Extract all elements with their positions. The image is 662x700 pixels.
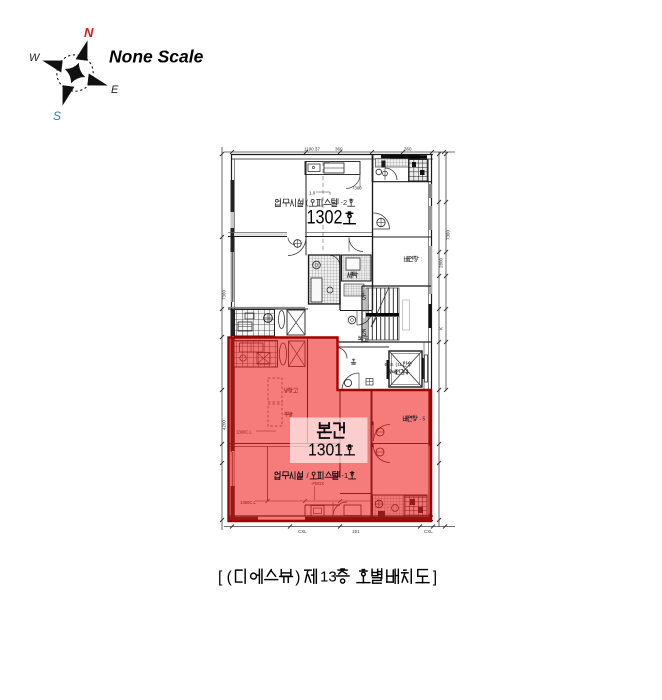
svg-text:360: 360: [335, 147, 343, 152]
svg-text:13: 13: [320, 569, 337, 586]
svg-text:7360: 7360: [446, 229, 451, 240]
svg-text:-2: -2: [341, 198, 348, 207]
svg-text:CXL: CXL: [424, 529, 433, 534]
svg-text:151: 151: [352, 529, 360, 534]
svg-text:1302: 1302: [307, 208, 343, 229]
svg-text:- 5: - 5: [420, 417, 426, 423]
svg-text:N: N: [84, 25, 94, 40]
svg-text:1190.37: 1190.37: [304, 147, 320, 152]
svg-text:360: 360: [404, 147, 412, 152]
svg-text:7360: 7360: [222, 289, 227, 300]
svg-text:): ): [295, 569, 300, 586]
svg-text:1.0: 1.0: [309, 191, 316, 196]
svg-text:]: ]: [433, 569, 437, 586]
svg-text:2800: 2800: [439, 257, 444, 268]
svg-text:S: S: [53, 109, 61, 123]
svg-text:None Scale: None Scale: [109, 47, 204, 67]
svg-text:1301: 1301: [308, 440, 343, 460]
svg-text:DN: DN: [362, 328, 368, 336]
svg-text:-1: -1: [342, 471, 349, 480]
svg-text:K: K: [439, 327, 444, 330]
svg-text:CXL: CXL: [298, 529, 307, 534]
svg-text:4200: 4200: [222, 419, 227, 430]
svg-text:E: E: [111, 84, 119, 96]
svg-text:(11: (11: [396, 362, 403, 368]
svg-text:W: W: [29, 52, 41, 64]
svg-text:7360: 7360: [352, 186, 362, 191]
svg-text:ELE: ELE: [385, 362, 394, 368]
svg-text:UP: UP: [362, 292, 368, 300]
svg-text:[ (: [ (: [218, 569, 233, 586]
